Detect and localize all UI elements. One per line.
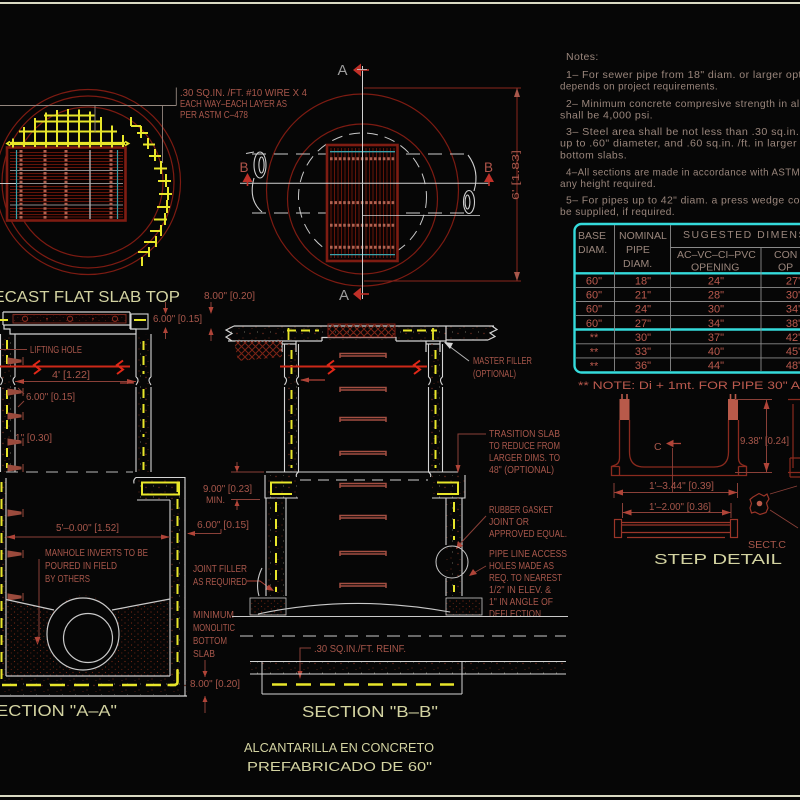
svg-text:18": 18": [635, 276, 651, 288]
svg-text:42": 42": [786, 332, 800, 344]
svg-text:MONOLITIC: MONOLITIC: [193, 623, 235, 634]
svg-text:30": 30": [708, 304, 724, 316]
svg-text:MIN.: MIN.: [206, 495, 225, 505]
svg-text:BASE: BASE: [578, 230, 606, 242]
svg-text:DIAM.: DIAM.: [623, 258, 652, 270]
svg-text:.30 SQ.IN./FT. REINF.: .30 SQ.IN./FT. REINF.: [314, 644, 406, 655]
svg-text:OPENING: OPENING: [691, 262, 739, 274]
svg-text:bottom slabs.: bottom slabs.: [560, 150, 627, 162]
svg-text:be supplied, if required.: be supplied, if required.: [560, 206, 675, 218]
svg-text:9.38" [0.24]: 9.38" [0.24]: [740, 436, 789, 447]
svg-text:JOINT OR: JOINT OR: [489, 517, 529, 528]
svg-text:8.00" [0.20]: 8.00" [0.20]: [190, 679, 240, 690]
svg-text:shall be 4,000 psi.: shall be 4,000 psi.: [560, 110, 653, 122]
svg-text:up to .60" diameter, and .60 s: up to .60" diameter, and .60 sq.in. /ft.…: [560, 138, 797, 150]
svg-text:40": 40": [708, 346, 724, 358]
svg-text:JOINT FILLER: JOINT FILLER: [193, 564, 247, 575]
svg-text:24": 24": [635, 304, 651, 316]
svg-text:TRASITION SLAB: TRASITION SLAB: [489, 429, 560, 440]
svg-text:AS REQUIRED: AS REQUIRED: [193, 577, 247, 588]
svg-text:34": 34": [786, 304, 800, 316]
svg-text:45": 45": [786, 346, 800, 358]
svg-text:38": 38": [786, 318, 800, 330]
svg-text:A: A: [339, 287, 349, 304]
svg-text:CON: CON: [774, 249, 797, 261]
svg-text:5'–0.00" [1.52]: 5'–0.00" [1.52]: [56, 523, 119, 534]
svg-text:6.00" [0.15]: 6.00" [0.15]: [197, 520, 249, 531]
svg-text:TO REDUCE FROM: TO REDUCE FROM: [489, 441, 560, 452]
svg-text:34": 34": [708, 318, 724, 330]
svg-text:PRECAST FLAT SLAB TOP: PRECAST FLAT SLAB TOP: [0, 289, 180, 306]
svg-text:DIAM.: DIAM.: [578, 244, 607, 256]
svg-text:37": 37": [708, 332, 724, 344]
svg-text:21": 21": [635, 290, 651, 302]
svg-text:B: B: [240, 160, 249, 175]
svg-text:3– Steel area shall be not le: 3– Steel area shall be not less than .30…: [566, 126, 800, 138]
svg-text:**: **: [590, 332, 599, 344]
svg-text:36": 36": [635, 360, 651, 372]
svg-text:1/2" IN ELEV. &: 1/2" IN ELEV. &: [489, 585, 551, 596]
svg-text:**: **: [590, 360, 599, 372]
svg-text:depends on project requirement: depends on project requirements.: [560, 81, 718, 93]
svg-text:RUBBER GASKET: RUBBER GASKET: [489, 505, 553, 516]
svg-text:MASTER FILLER: MASTER FILLER: [473, 356, 532, 367]
svg-text:SUGESTED DIMENS: SUGESTED DIMENS: [683, 229, 800, 241]
svg-text:EACH WAY–EACH LAYER AS: EACH WAY–EACH LAYER AS: [180, 99, 287, 110]
svg-text:6.00" [0.15]: 6.00" [0.15]: [26, 392, 75, 403]
svg-text:NOMINAL: NOMINAL: [619, 230, 667, 242]
svg-text:30": 30": [786, 290, 800, 302]
svg-text:48": 48": [786, 360, 800, 372]
svg-text:SLAB: SLAB: [193, 649, 215, 660]
svg-text:8.00" [0.20]: 8.00" [0.20]: [204, 291, 255, 302]
svg-text:24": 24": [708, 276, 724, 288]
svg-text:APPROVED EQUAL.: APPROVED EQUAL.: [489, 529, 567, 540]
svg-text:4–All sections are made in acc: 4–All sections are made in accordance wi…: [566, 167, 800, 179]
svg-text:STEP DETAIL: STEP DETAIL: [654, 551, 782, 568]
svg-text:A: A: [338, 62, 348, 79]
svg-text:SECT.C: SECT.C: [748, 540, 786, 551]
svg-text:1" [0.30]: 1" [0.30]: [15, 433, 52, 444]
svg-text:2– Minimum concrete compresiv: 2– Minimum concrete compresive strength …: [566, 98, 800, 110]
svg-text:27": 27": [635, 318, 651, 330]
svg-text:SECTION "A–A": SECTION "A–A": [0, 703, 117, 720]
svg-text:5– For pipes up to 42" diam.: 5– For pipes up to 42" diam. a press wed…: [566, 195, 800, 207]
svg-text:OP: OP: [778, 262, 793, 274]
svg-text:1'–2.00" [0.36]: 1'–2.00" [0.36]: [649, 502, 711, 513]
svg-text:any height required.: any height required.: [560, 178, 656, 190]
svg-text:** NOTE: Di + 1mt. FOR PIPE 30: ** NOTE: Di + 1mt. FOR PIPE 30" AN: [578, 380, 800, 392]
svg-text:MINIMUM: MINIMUM: [193, 610, 234, 621]
svg-text:4' [1.22]: 4' [1.22]: [52, 370, 90, 381]
svg-text:60": 60": [586, 318, 602, 330]
svg-text:REQ. TO NEAREST: REQ. TO NEAREST: [489, 573, 562, 584]
svg-text:30": 30": [635, 332, 651, 344]
svg-text:6' [1.83]: 6' [1.83]: [510, 150, 522, 200]
svg-text:48" (OPTIONAL): 48" (OPTIONAL): [489, 465, 554, 476]
svg-text:POURED IN FIELD: POURED IN FIELD: [45, 561, 117, 572]
svg-text:HOLES MADE AS: HOLES MADE AS: [489, 561, 554, 572]
svg-text:60": 60": [586, 276, 602, 288]
svg-text:SECTION "B–B": SECTION "B–B": [302, 704, 438, 721]
svg-text:Notes:: Notes:: [566, 51, 599, 63]
svg-text:1" IN ANGLE OF: 1" IN ANGLE OF: [489, 597, 553, 608]
svg-text:44": 44": [708, 360, 724, 372]
svg-text:(OPTIONAL): (OPTIONAL): [473, 369, 516, 380]
svg-text:PIPE: PIPE: [626, 244, 650, 256]
svg-text:6.00" [0.15]: 6.00" [0.15]: [153, 314, 202, 325]
svg-text:33": 33": [635, 346, 651, 358]
svg-text:PIPE LINE ACCESS: PIPE LINE ACCESS: [489, 549, 567, 560]
svg-text:ALCANTARILLA EN CONCRETO: ALCANTARILLA EN CONCRETO: [244, 740, 434, 755]
svg-text:PREFABRICADO DE 60": PREFABRICADO DE 60": [247, 759, 432, 774]
svg-text:27": 27": [786, 276, 800, 288]
svg-text:1'–3.44" [0.39]: 1'–3.44" [0.39]: [649, 481, 714, 492]
svg-text:PER ASTM C–478: PER ASTM C–478: [180, 110, 248, 121]
svg-text:B: B: [484, 160, 493, 175]
svg-text:MANHOLE INVERTS TO BE: MANHOLE INVERTS TO BE: [45, 548, 148, 559]
svg-text:BY OTHERS: BY OTHERS: [45, 574, 90, 585]
svg-text:LARGER DIMS. TO: LARGER DIMS. TO: [489, 453, 560, 464]
svg-text:**: **: [590, 346, 599, 358]
svg-text:LIFTING HOLE: LIFTING HOLE: [30, 345, 82, 356]
svg-text:9.00" [0.23]: 9.00" [0.23]: [203, 484, 252, 495]
svg-text:BOTTOM: BOTTOM: [193, 636, 227, 647]
svg-text:.30 SQ.IN. /FT. #10 WIRE X 4: .30 SQ.IN. /FT. #10 WIRE X 4: [180, 88, 307, 99]
svg-text:60": 60": [586, 290, 602, 302]
svg-text:DEFLECTION: DEFLECTION: [489, 609, 541, 620]
svg-text:1– For sewer pipe from 18" di: 1– For sewer pipe from 18" diam. or larg…: [566, 69, 800, 81]
svg-text:28": 28": [708, 290, 724, 302]
svg-text:60": 60": [586, 304, 602, 316]
svg-text:AC–VC–CI–PVC: AC–VC–CI–PVC: [677, 249, 756, 261]
svg-text:C: C: [654, 441, 662, 453]
